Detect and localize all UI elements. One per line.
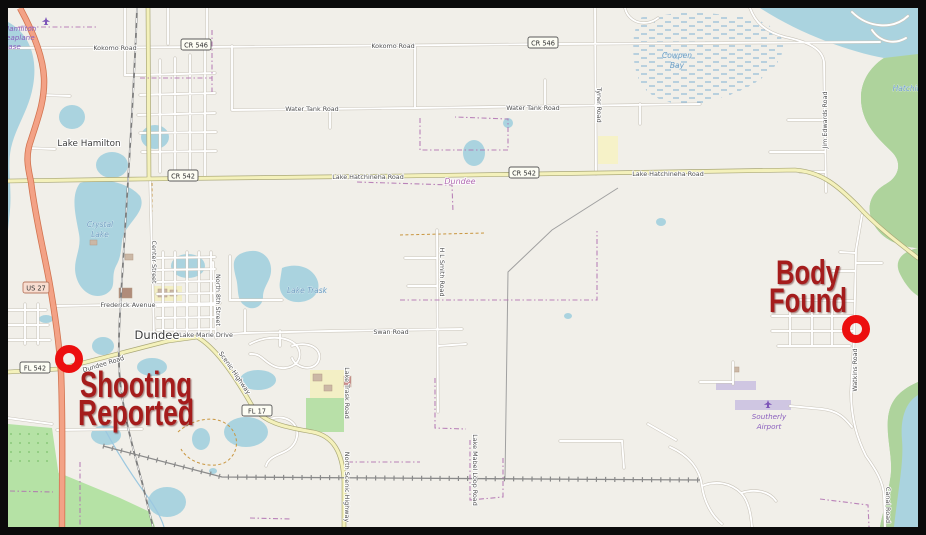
shield-cr-546: CR 546 <box>181 39 211 50</box>
map-container: CR 546CR 546CR 542CR 542US 27FL 542FL 17… <box>8 8 918 527</box>
crystal-place-label: Crystal <box>87 220 114 229</box>
water-tank-road-label: Water Tank Road <box>506 104 560 112</box>
hatchineha-place-label: Hatchineha <box>893 84 918 93</box>
lake-mabel-loop-road-label: Lake Mabel Loop Road <box>471 434 479 506</box>
body-found-text-line: Found <box>769 282 847 320</box>
canal-road-label: Canal Road <box>884 487 892 523</box>
hamilton-place-label: Hamilton <box>8 24 37 33</box>
center-street-label: Center Street <box>150 241 158 284</box>
swan-road-label: Swan Road <box>373 328 408 336</box>
dundee-place-label: Dundee <box>444 177 475 186</box>
dundee-place-label: Dundee <box>135 328 180 342</box>
cowpen-place-label: Cowpen <box>662 51 692 60</box>
map-canvas[interactable]: CR 546CR 546CR 542CR 542US 27FL 542FL 17… <box>8 8 918 527</box>
airport-place-label: Airport <box>756 422 783 431</box>
shield-cr-542: CR 542 <box>168 170 198 181</box>
kokomo-road-label: Kokomo Road <box>93 44 136 52</box>
shield-fl-17: FL 17 <box>242 405 272 416</box>
water-tank-road-label: Water Tank Road <box>285 105 339 113</box>
svg-text:CR 546: CR 546 <box>184 41 208 49</box>
shooting-reported-text-line: Reported <box>78 392 194 433</box>
north-scenic-highway-label: North Scenic Highway <box>343 452 351 523</box>
kokomo-road-label: Kokomo Road <box>371 42 414 50</box>
lake-trask-road-label: Lake Trask Road <box>343 367 351 419</box>
svg-text:CR 542: CR 542 <box>171 172 195 180</box>
lake-hatchineha-road-label: Lake Hatchineha Road <box>332 173 404 181</box>
svg-text:FL 542: FL 542 <box>24 364 46 372</box>
north-8th-street-label: North 8th Street <box>214 274 222 326</box>
shield-cr-542: CR 542 <box>509 167 539 178</box>
lake-hatchineha-road-label: Lake Hatchineha Road <box>632 170 704 178</box>
screenshot-frame: CR 546CR 546CR 542CR 542US 27FL 542FL 17… <box>0 0 926 535</box>
jim-edwards-road-label: Jim Edwards Road <box>821 91 829 149</box>
lake-hamilton-place-label: Lake Hamilton <box>57 139 120 149</box>
base-place-label: Base <box>8 42 21 51</box>
lake-place-label: Lake <box>91 230 109 239</box>
svg-text:CR 542: CR 542 <box>512 169 536 177</box>
watkins-road-label: Watkins Road <box>851 348 859 391</box>
seaplane-place-label: Seaplane <box>8 33 35 42</box>
bay-place-label: Bay <box>670 61 685 70</box>
tyner-road-label: Tyner Road <box>595 86 603 122</box>
shield-cr-546: CR 546 <box>528 37 558 48</box>
lake-marie-drive-label: Lake Marie Drive <box>179 331 233 339</box>
shield-us-27: US 27 <box>23 282 49 293</box>
shield-fl-542: FL 542 <box>20 362 50 373</box>
svg-text:US 27: US 27 <box>26 284 46 292</box>
park-area <box>306 398 344 432</box>
svg-text:CR 546: CR 546 <box>531 39 555 47</box>
svg-text:FL 17: FL 17 <box>248 407 266 415</box>
h-l-smith-road-label: H L Smith Road <box>438 247 446 296</box>
southerly-place-label: Southerly <box>752 412 787 421</box>
frederick-avenue-label: Frederick Avenue <box>100 301 155 309</box>
lake-trask-place-label: Lake Trask <box>287 286 328 295</box>
